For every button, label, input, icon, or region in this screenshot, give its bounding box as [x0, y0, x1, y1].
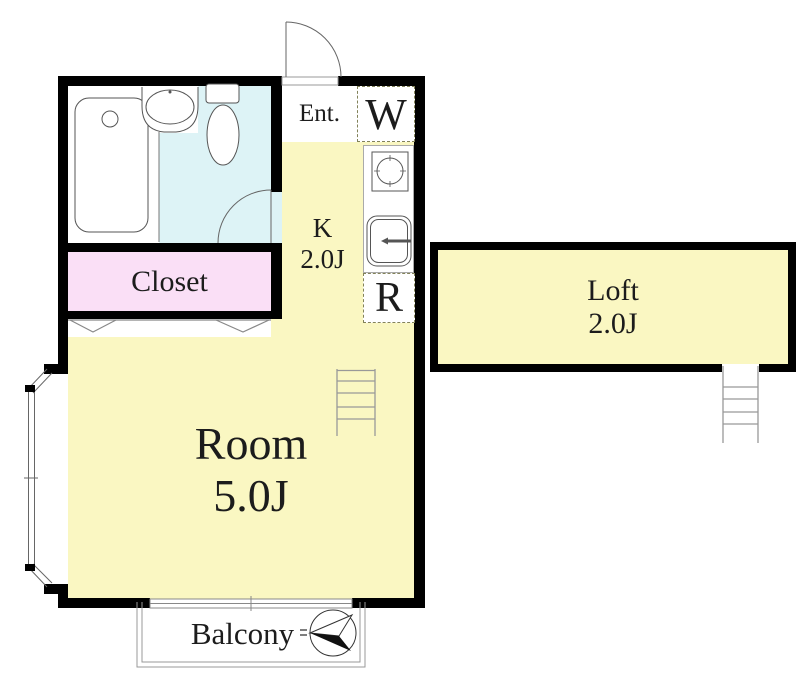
entrance-floor — [282, 86, 357, 142]
wall-left-lower — [58, 586, 68, 608]
wall-bottom-left — [58, 598, 150, 608]
wall-right — [414, 76, 425, 608]
wall-closet-bottom — [58, 311, 282, 319]
wall-top-right — [338, 76, 425, 86]
bay-window-icon — [24, 364, 68, 594]
room-floor — [68, 319, 414, 600]
bathroom-wet-area — [159, 133, 271, 243]
balcony-railing — [137, 602, 365, 667]
washer-space: W — [357, 86, 415, 142]
closet-floor — [68, 252, 271, 311]
bathroom-door-gap-floor — [271, 192, 282, 243]
wall-left-upper — [58, 76, 68, 368]
wall-bathroom-right — [271, 76, 282, 192]
wall-bathroom-bottom — [58, 243, 282, 252]
bathroom-wet-area-upper — [198, 86, 271, 133]
loft-floor — [438, 250, 788, 364]
refrigerator-label: R — [375, 274, 403, 322]
balcony-label: Balcony — [150, 614, 335, 654]
wall-bottom-right — [352, 598, 425, 608]
wall-top-left — [58, 76, 282, 86]
loft-wall-ladder-gap — [722, 364, 759, 372]
entrance-door-icon — [282, 22, 341, 85]
compass-icon — [300, 610, 356, 656]
floor-plan: W R — [0, 0, 800, 691]
closet-door-strip — [68, 319, 271, 337]
loft-ladder-icon — [723, 366, 758, 443]
kitchen-counter — [363, 145, 414, 273]
wall-closet-right — [271, 243, 282, 319]
refrigerator-space: R — [363, 273, 415, 323]
washer-label: W — [365, 89, 407, 140]
